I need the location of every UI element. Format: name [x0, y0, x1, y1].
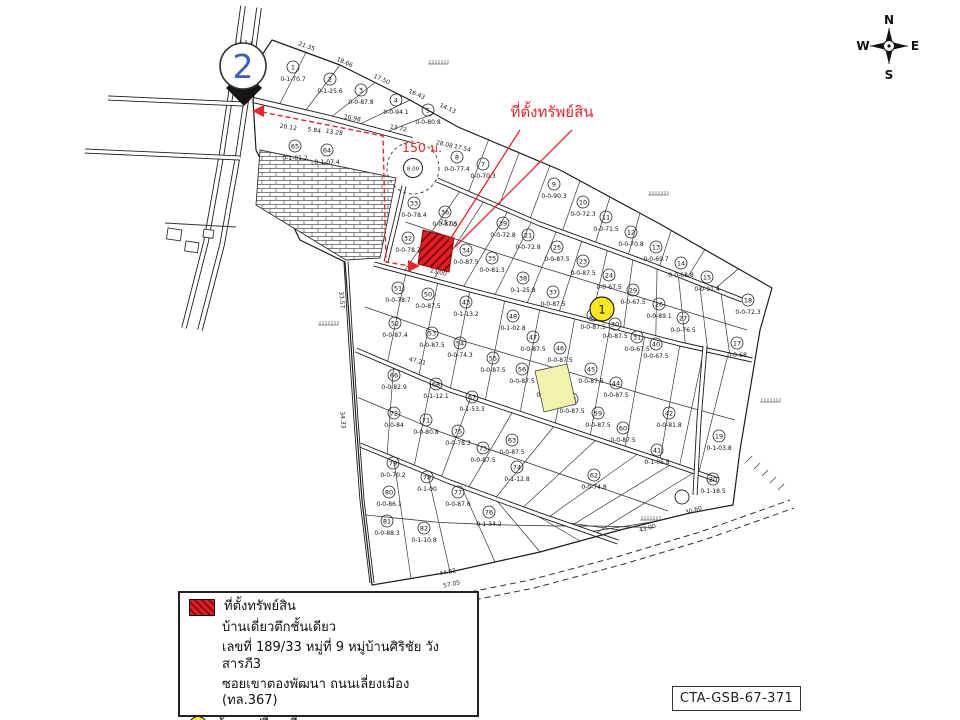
- svg-text:0-0-87.5: 0-0-87.5: [580, 324, 606, 331]
- svg-text:0-0-87.5: 0-0-87.5: [602, 333, 628, 340]
- svg-text:15: 15: [703, 273, 711, 281]
- svg-text:79: 79: [389, 459, 397, 467]
- svg-text:11: 11: [602, 213, 610, 221]
- dimension-label: 20.12: [279, 123, 297, 133]
- comparison-number: 1: [598, 303, 605, 317]
- svg-text:0-1-12.1: 0-1-12.1: [423, 393, 449, 400]
- plot-label: 420-0-81.8: [656, 407, 682, 429]
- svg-text:65: 65: [291, 142, 299, 150]
- photo-point-number: 2: [233, 47, 254, 86]
- svg-text:0-0-84: 0-0-84: [384, 422, 404, 429]
- svg-text:0-0-74.3: 0-0-74.3: [447, 352, 473, 359]
- svg-text:82: 82: [420, 524, 428, 532]
- plot-label: 260-0-89.1: [646, 298, 672, 320]
- svg-text:1: 1: [291, 63, 295, 71]
- svg-text:80: 80: [385, 488, 393, 496]
- reference-code: CTA-GSB-67-371: [680, 691, 793, 706]
- svg-text:0-0-90.3: 0-0-90.3: [541, 193, 567, 200]
- svg-text:0-0-87.5: 0-0-87.5: [544, 256, 570, 263]
- legend-box: ที่ตั้งทรัพย์สิน บ้านเดี่ยวตึกชั้นเดียว …: [178, 591, 479, 717]
- legend-red-hatch-swatch-icon: [189, 599, 215, 616]
- svg-text:27: 27: [679, 314, 687, 322]
- svg-text:4: 4: [394, 96, 398, 104]
- svg-text:54: 54: [456, 339, 464, 347]
- reference-code-box: CTA-GSB-67-371: [672, 686, 801, 711]
- legend-comparison-row: ข้อมูลเปรียบเทียบ: [189, 716, 468, 720]
- svg-text:40: 40: [652, 340, 660, 348]
- svg-text:9: 9: [552, 180, 556, 188]
- svg-text:53: 53: [428, 329, 436, 337]
- compass-w-label: W: [856, 39, 869, 53]
- svg-text:81: 81: [383, 517, 391, 525]
- plot-label: 80-0-77.4: [444, 151, 470, 173]
- plot-label: 240-0-67.5: [596, 269, 622, 291]
- svg-text:13: 13: [652, 243, 660, 251]
- svg-text:33: 33: [410, 199, 418, 207]
- svg-text:20: 20: [709, 475, 717, 483]
- svg-text:0-1-01.2: 0-1-01.2: [282, 155, 308, 162]
- svg-text:23: 23: [579, 257, 587, 265]
- legend-address-line2: ซอยเขาตองพัฒนา ถนนเลี่ยงเมือง (ทล.367): [222, 677, 468, 710]
- svg-text:0-0-71.5: 0-0-71.5: [593, 226, 619, 233]
- dimension-label: 16.43: [407, 88, 426, 101]
- svg-text:0-0-86.1: 0-0-86.1: [376, 501, 402, 508]
- svg-text:73: 73: [479, 444, 487, 452]
- plot-label: 430-1-13.2: [453, 296, 479, 318]
- plot-label: 130-0-69.7: [643, 241, 669, 263]
- compass-s-label: S: [885, 68, 894, 82]
- dimension-label: 47.21: [408, 356, 427, 367]
- svg-text:37: 37: [549, 288, 557, 296]
- svg-text:56: 56: [518, 365, 526, 373]
- plot-label: 720-0-84: [384, 407, 404, 429]
- svg-text:0-0-67.5: 0-0-67.5: [596, 284, 622, 291]
- svg-text:0-0-68: 0-0-68: [727, 352, 747, 359]
- plot-label: 510-0-78.7: [385, 282, 411, 304]
- svg-text:0-0-87.5: 0-0-87.5: [540, 301, 566, 308]
- svg-text:0-1-13.2: 0-1-13.2: [453, 311, 479, 318]
- legend-house-type: บ้านเดี่ยวตึกชั้นเดียว: [222, 620, 468, 636]
- compass-e-label: E: [911, 39, 919, 53]
- svg-text:0-0-87.5: 0-0-87.5: [432, 221, 458, 228]
- svg-text:0-0-80.8: 0-0-80.8: [413, 429, 439, 436]
- svg-text:75: 75: [454, 427, 462, 435]
- svg-text:0-1-00: 0-1-00: [417, 486, 437, 493]
- svg-text:14: 14: [677, 259, 685, 267]
- svg-text:48: 48: [509, 312, 517, 320]
- svg-text:0-1-12.8: 0-1-12.8: [504, 476, 530, 483]
- svg-text:21: 21: [524, 231, 532, 239]
- svg-text:0-0-67.5: 0-0-67.5: [643, 353, 669, 360]
- plot-label: 500-0-87.5: [415, 288, 441, 310]
- culdesac-radius-label: 8.00: [407, 167, 420, 173]
- svg-text:0-0-70.2: 0-0-70.2: [380, 472, 406, 479]
- comparison-plot-highlight: [535, 364, 576, 412]
- svg-text:63: 63: [508, 436, 516, 444]
- svg-text:0-0-74.8: 0-0-74.8: [581, 484, 607, 491]
- plot-label: 340-0-87.5: [453, 244, 479, 266]
- svg-text:52: 52: [391, 319, 399, 327]
- svg-text:0-0-87.5: 0-0-87.5: [610, 437, 636, 444]
- dimension-label: 44.82: [439, 567, 457, 577]
- plot-label: 140-0-68.8: [668, 257, 694, 279]
- svg-text:0-1-03.8: 0-1-03.8: [706, 445, 732, 452]
- svg-text:34: 34: [462, 246, 470, 254]
- svg-text:66: 66: [390, 371, 398, 379]
- plot-label: 20-1-25.6: [317, 73, 343, 95]
- property-location-map-page: 21.3518.6617.5016.4314.1320.125.8413.281…: [0, 0, 960, 720]
- svg-text:0-0-69.7: 0-0-69.7: [643, 256, 669, 263]
- svg-text:0-0-87.5: 0-0-87.5: [547, 357, 573, 364]
- plot-label: 380-1-25.8: [510, 272, 536, 294]
- svg-text:0-0-87.5: 0-0-87.5: [559, 408, 585, 415]
- terraced-area: [256, 150, 396, 260]
- svg-text:0-1-05.8: 0-1-05.8: [644, 459, 670, 466]
- svg-text:10: 10: [579, 198, 587, 206]
- svg-text:7: 7: [481, 160, 485, 168]
- svg-text:77: 77: [454, 488, 462, 496]
- svg-text:25: 25: [553, 243, 561, 251]
- plot-label: 440-0-87.5: [603, 377, 629, 399]
- svg-text:47: 47: [529, 333, 537, 341]
- svg-text:0-0-94.1: 0-0-94.1: [383, 109, 409, 116]
- svg-text:0-1-53.3: 0-1-53.3: [459, 406, 485, 413]
- svg-text:0-1-18.5: 0-1-18.5: [700, 488, 726, 495]
- plot-label: 750-0-78.3: [445, 425, 471, 447]
- svg-text:0-0-91.4: 0-0-91.4: [694, 286, 720, 293]
- dimension-label: 5.84: [307, 126, 321, 135]
- svg-text:0-0-87.5: 0-0-87.5: [520, 346, 546, 353]
- svg-text:0-0-72.8: 0-0-72.8: [515, 244, 541, 251]
- dimension-label: 17.50: [372, 73, 391, 86]
- svg-text:29: 29: [629, 286, 637, 294]
- svg-text:12: 12: [627, 228, 635, 236]
- svg-text:0-1-10.8: 0-1-10.8: [411, 537, 437, 544]
- svg-text:0-0-87.5: 0-0-87.5: [603, 392, 629, 399]
- svg-text:0-0-70.8: 0-0-70.8: [618, 241, 644, 248]
- svg-text:0-1-70.7: 0-1-70.7: [280, 76, 306, 83]
- plot-label: 10-1-70.7: [280, 61, 306, 83]
- dimension-label: 21.35: [297, 40, 316, 53]
- plot-label: 620-0-74.8: [581, 469, 607, 491]
- svg-text:78: 78: [423, 473, 431, 481]
- svg-text:0-0-72.3: 0-0-72.3: [570, 211, 596, 218]
- dimension-label: 34.33: [338, 411, 346, 429]
- plot-label: 320-0-78.7: [395, 232, 421, 254]
- svg-text:24: 24: [605, 271, 613, 279]
- svg-text:5: 5: [426, 106, 430, 114]
- svg-text:0-0-67.5: 0-0-67.5: [624, 346, 650, 353]
- plot-label: 640-1-07.4: [314, 144, 340, 166]
- svg-text:55: 55: [489, 354, 497, 362]
- plot-label: 710-0-80.8: [413, 414, 439, 436]
- svg-text:72: 72: [390, 409, 398, 417]
- plot-label: 360-0-87.5: [432, 206, 458, 228]
- plot-label: 730-0-87.5: [470, 442, 496, 464]
- svg-text:0-0-82.9: 0-0-82.9: [381, 384, 407, 391]
- plot-label: 350-0-81.3: [479, 252, 505, 274]
- svg-text:76: 76: [485, 508, 493, 516]
- dimension-label: 13.28: [325, 128, 343, 138]
- plot-label: 550-0-87.5: [480, 352, 506, 374]
- plot-label: 560-0-87.5: [509, 363, 535, 385]
- dimension-label: 33.57: [337, 291, 345, 309]
- svg-text:59: 59: [594, 409, 602, 417]
- svg-text:62: 62: [590, 471, 598, 479]
- svg-text:0-0-87.5: 0-0-87.5: [415, 303, 441, 310]
- svg-text:51: 51: [394, 284, 402, 292]
- svg-text:0-0-87.5: 0-0-87.5: [578, 378, 604, 385]
- svg-text:35: 35: [488, 254, 496, 262]
- svg-text:17: 17: [733, 339, 741, 347]
- compass-n-label: N: [884, 13, 894, 27]
- legend-property-row: ที่ตั้งทรัพย์สิน: [189, 599, 468, 616]
- plot-label: 630-0-87.5: [499, 434, 525, 456]
- svg-text:64: 64: [323, 146, 331, 154]
- plot-label: 530-0-87.5: [419, 327, 445, 349]
- plot-label: 70-0-70.3: [470, 158, 496, 180]
- svg-text:0-0-87.8: 0-0-87.8: [348, 99, 374, 106]
- svg-text:0-1-34.2: 0-1-34.2: [476, 521, 502, 528]
- svg-text:0-0-77.4: 0-0-77.4: [444, 166, 470, 173]
- distance-label: 150 ม.: [402, 140, 442, 155]
- svg-text:0-0-87.5: 0-0-87.5: [509, 378, 535, 385]
- svg-text:8: 8: [455, 153, 459, 161]
- svg-text:0-0-87.5: 0-0-87.5: [499, 449, 525, 456]
- plot-label: 190-1-03.8: [706, 430, 732, 452]
- svg-text:0-0-87.5: 0-0-87.5: [570, 270, 596, 277]
- svg-text:19: 19: [715, 432, 723, 440]
- svg-text:50: 50: [424, 290, 432, 298]
- legend-address-line1: เลขที่ 189/33 หมู่ที่ 9 หมู่บ้านศิริชัย …: [222, 640, 468, 673]
- plot-label: 90-0-90.3: [541, 178, 567, 200]
- svg-text:43: 43: [462, 298, 470, 306]
- svg-text:39: 39: [499, 219, 507, 227]
- svg-text:3: 3: [359, 86, 363, 94]
- svg-text:0-0-67.5: 0-0-67.5: [620, 299, 646, 306]
- dimension-label: 14.13: [438, 102, 457, 115]
- photo-point-marker: 2: [220, 43, 266, 106]
- plot-label: 540-0-74.3: [447, 337, 473, 359]
- svg-text:46: 46: [556, 344, 564, 352]
- svg-text:18: 18: [744, 296, 752, 304]
- plot-label: 110-0-71.5: [593, 211, 619, 233]
- subject-property-plot: [418, 230, 454, 272]
- cadastral-map: 21.3518.6617.5016.4314.1320.125.8413.281…: [0, 0, 960, 720]
- dimension-label: 30.60: [684, 505, 703, 517]
- svg-text:0-0-87.5: 0-0-87.5: [470, 457, 496, 464]
- plot-label: 590-0-87.5: [585, 407, 611, 429]
- svg-text:36: 36: [441, 208, 449, 216]
- svg-text:26: 26: [655, 300, 663, 308]
- property-location-callout-label: ที่ตั้งทรัพย์สิน: [511, 100, 594, 124]
- plot-label: 760-1-34.2: [476, 506, 502, 528]
- svg-text:30: 30: [611, 320, 619, 328]
- plot-label: 480-1-02.8: [500, 310, 526, 332]
- svg-text:0-0-78.7: 0-0-78.7: [395, 247, 421, 254]
- svg-text:41: 41: [653, 446, 661, 454]
- svg-text:74: 74: [513, 463, 521, 471]
- svg-text:38: 38: [519, 274, 527, 282]
- svg-text:0-1-25.8: 0-1-25.8: [510, 287, 536, 294]
- plot-label: 330-0-78.4: [401, 197, 427, 219]
- plot-label: 600-0-87.5: [610, 422, 636, 444]
- svg-text:31: 31: [633, 333, 641, 341]
- svg-text:60: 60: [619, 424, 627, 432]
- svg-text:67: 67: [468, 393, 476, 401]
- svg-text:0-0-72.3: 0-0-72.3: [735, 309, 761, 316]
- plot-label: 30-0-87.8: [348, 84, 374, 106]
- plot-label: 820-1-10.8: [411, 522, 437, 544]
- svg-text:0-0-81.3: 0-0-81.3: [479, 267, 505, 274]
- svg-text:0-0-80.8: 0-0-80.8: [415, 119, 441, 126]
- svg-text:0-0-89.1: 0-0-89.1: [646, 313, 672, 320]
- svg-text:0-0-78.7: 0-0-78.7: [385, 297, 411, 304]
- svg-text:0-0-88.3: 0-0-88.3: [374, 530, 400, 537]
- svg-text:0-0-72.8: 0-0-72.8: [490, 232, 516, 239]
- svg-text:0-0-87.6: 0-0-87.6: [445, 501, 471, 508]
- dimension-label: 57.05: [443, 579, 461, 589]
- plot-label: 120-0-70.8: [618, 226, 644, 248]
- svg-text:0-0-87.5: 0-0-87.5: [585, 422, 611, 429]
- plot-label: 650-1-01.2: [282, 140, 308, 162]
- plot-label: 210-0-72.8: [515, 229, 541, 251]
- svg-text:0-1-25.6: 0-1-25.6: [317, 88, 343, 95]
- svg-text:44: 44: [612, 379, 620, 387]
- svg-text:0-0-87.5: 0-0-87.5: [419, 342, 445, 349]
- plot-label: 100-0-72.3: [570, 196, 596, 218]
- svg-text:0-0-87.4: 0-0-87.4: [382, 332, 408, 339]
- svg-text:32: 32: [404, 234, 412, 242]
- plot-label: 470-0-87.5: [520, 331, 546, 353]
- svg-text:68: 68: [432, 380, 440, 388]
- svg-text:42: 42: [665, 409, 673, 417]
- comparison-marker: 1: [590, 297, 614, 321]
- svg-text:0-0-78.3: 0-0-78.3: [445, 440, 471, 447]
- plot-label: 390-0-72.8: [490, 217, 516, 239]
- svg-text:0-0-81.8: 0-0-81.8: [656, 422, 682, 429]
- svg-text:45: 45: [587, 365, 595, 373]
- svg-text:0-0-78.4: 0-0-78.4: [401, 212, 427, 219]
- compass-rose: N S E W: [856, 13, 919, 82]
- plot-label: 450-0-87.5: [578, 363, 604, 385]
- svg-text:0-0-87.5: 0-0-87.5: [453, 259, 479, 266]
- svg-text:71: 71: [422, 416, 430, 424]
- plot-label: 460-0-87.5: [547, 342, 573, 364]
- property-location-callout: ที่ตั้งทรัพย์สิน: [496, 97, 608, 127]
- plot-label: 740-1-12.8: [504, 461, 530, 483]
- svg-text:2: 2: [328, 75, 332, 83]
- map-geometry: 21.3518.6617.5016.4314.1320.125.8413.281…: [85, 6, 794, 616]
- svg-text:0-1-02.8: 0-1-02.8: [500, 325, 526, 332]
- legend-yellow-circle-icon: [189, 716, 207, 720]
- svg-text:0-0-68.8: 0-0-68.8: [668, 272, 694, 279]
- svg-text:0-0-87.5: 0-0-87.5: [480, 367, 506, 374]
- plot-label: 170-0-68: [727, 337, 747, 359]
- svg-text:0-1-07.4: 0-1-07.4: [314, 159, 340, 166]
- legend-property-title: ที่ตั้งทรัพย์สิน: [224, 599, 296, 615]
- plot-label: 370-0-87.5: [540, 286, 566, 308]
- svg-text:0-0-76.5: 0-0-76.5: [670, 327, 696, 334]
